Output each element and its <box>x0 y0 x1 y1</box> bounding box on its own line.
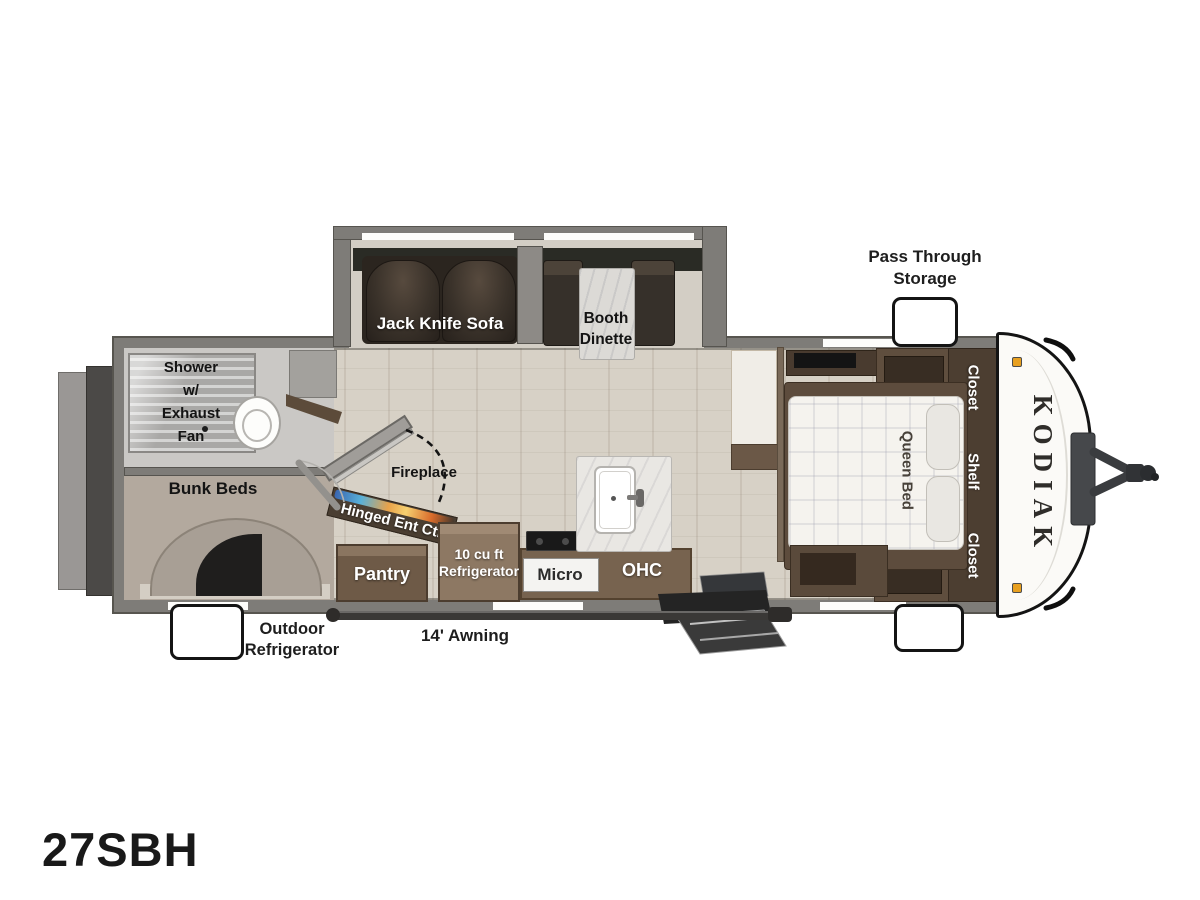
bathroom-door-arc <box>301 461 344 502</box>
propane-cover <box>1071 433 1095 525</box>
awning-end-right <box>768 607 792 622</box>
tv-swing-arc <box>406 430 445 502</box>
pass-through-door <box>892 297 958 347</box>
bathroom-door-leaf <box>299 463 337 507</box>
overlay-drawings <box>0 0 1200 900</box>
corner-shelf <box>286 394 342 424</box>
outdoor-fridge-label: Outdoor Refrigerator <box>224 619 360 661</box>
pass-through-door-rear-side <box>894 604 964 652</box>
pass-through-label: Pass Through Storage <box>845 246 1005 290</box>
cap-accent-top <box>1046 340 1073 359</box>
model-name: 27SBH <box>42 822 199 877</box>
hitch-ball <box>1151 473 1159 481</box>
floorplan-canvas: Shower w/ Exhaust Fan Bunk Beds Jack Kni… <box>0 0 1200 900</box>
outdoor-fridge-label-line1: Outdoor <box>224 619 360 640</box>
awning-bar <box>330 611 786 620</box>
awning-label: 14' Awning <box>390 625 540 646</box>
pass-through-label-line1: Pass Through <box>845 246 1005 268</box>
outdoor-fridge-label-line2: Refrigerator <box>224 640 360 661</box>
pass-through-label-line2: Storage <box>845 268 1005 290</box>
cap-accent-bottom <box>1046 589 1073 608</box>
